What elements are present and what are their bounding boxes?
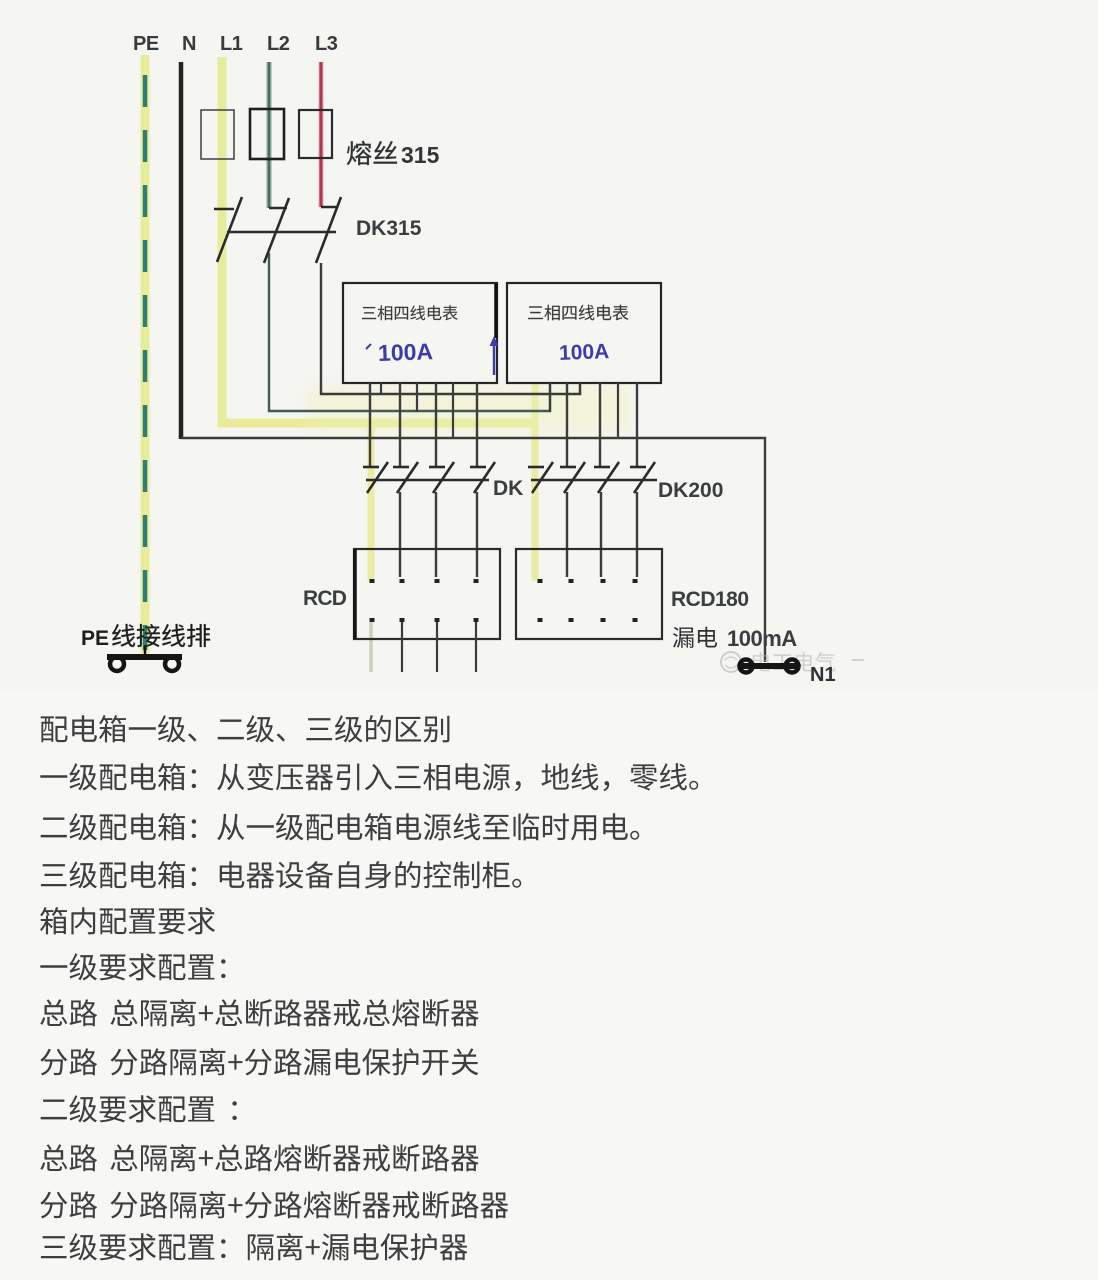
svg-text:PE: PE (81, 627, 109, 650)
svg-text:PE: PE (133, 33, 159, 55)
svg-text:100mA: 100mA (727, 626, 797, 651)
svg-text:L2: L2 (267, 33, 290, 55)
svg-text:L3: L3 (315, 33, 338, 55)
svg-text:L1: L1 (220, 33, 243, 55)
svg-text:N1: N1 (810, 664, 836, 686)
svg-text:RCD180: RCD180 (671, 588, 749, 611)
svg-text:315: 315 (401, 142, 440, 168)
svg-text:100A: 100A (559, 340, 610, 365)
svg-text:DK315: DK315 (356, 217, 422, 240)
svg-text:DK200: DK200 (658, 479, 723, 502)
svg-text:N: N (182, 33, 196, 55)
svg-text:100A: 100A (378, 338, 434, 366)
svg-text:RCD: RCD (303, 587, 347, 610)
svg-text:DK: DK (493, 477, 523, 500)
